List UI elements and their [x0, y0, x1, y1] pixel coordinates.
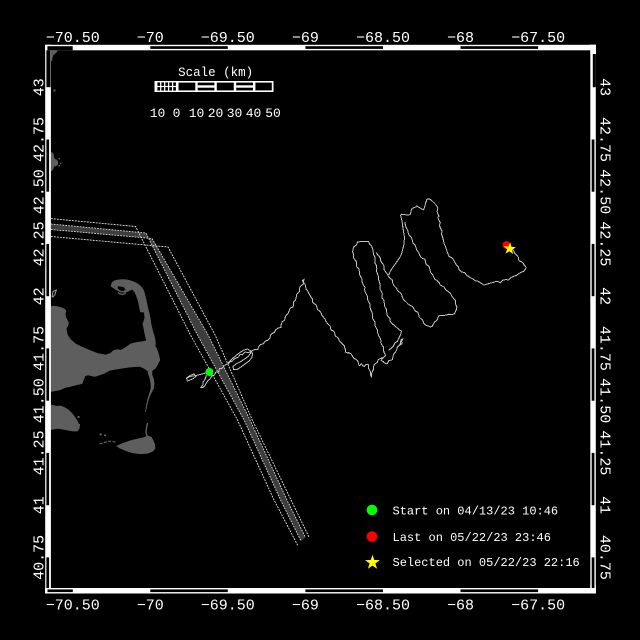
svg-text:10: 10 — [150, 106, 166, 121]
svg-text:43: 43 — [32, 78, 49, 96]
svg-text:Scale (km): Scale (km) — [178, 66, 253, 80]
svg-text:−68: −68 — [447, 30, 474, 47]
svg-text:43: 43 — [596, 78, 613, 96]
svg-text:42.25: 42.25 — [596, 221, 613, 266]
svg-text:Selected on 05/22/23 22:16: Selected on 05/22/23 22:16 — [393, 556, 580, 570]
svg-text:40.75: 40.75 — [32, 535, 49, 580]
svg-text:41.75: 41.75 — [32, 326, 49, 371]
svg-text:−70: −70 — [137, 598, 164, 615]
svg-text:41.25: 41.25 — [596, 430, 613, 475]
svg-text:42.50: 42.50 — [32, 169, 49, 214]
svg-text:−68: −68 — [447, 598, 474, 615]
svg-text:42.25: 42.25 — [32, 221, 49, 266]
svg-text:41.75: 41.75 — [596, 326, 613, 371]
svg-text:−69: −69 — [292, 598, 319, 615]
svg-text:42.50: 42.50 — [596, 169, 613, 214]
svg-text:−67.50: −67.50 — [511, 598, 565, 615]
svg-text:41.50: 41.50 — [596, 378, 613, 423]
svg-text:20: 20 — [208, 106, 224, 121]
svg-text:50: 50 — [265, 106, 281, 121]
svg-text:−69.50: −69.50 — [201, 30, 255, 47]
svg-text:41: 41 — [596, 496, 613, 514]
svg-text:42: 42 — [32, 287, 49, 305]
svg-text:−70: −70 — [137, 30, 164, 47]
svg-text:40.75: 40.75 — [596, 535, 613, 580]
svg-text:−70.50: −70.50 — [46, 598, 100, 615]
svg-text:0: 0 — [173, 106, 181, 121]
svg-text:Last on 05/22/23 23:46: Last on 05/22/23 23:46 — [393, 531, 551, 545]
svg-text:−69.50: −69.50 — [201, 598, 255, 615]
svg-text:−68.50: −68.50 — [356, 30, 410, 47]
svg-text:30: 30 — [227, 106, 243, 121]
svg-text:42.75: 42.75 — [32, 117, 49, 162]
svg-text:Start on 04/13/23 10:46: Start on 04/13/23 10:46 — [393, 504, 559, 518]
svg-text:41: 41 — [32, 496, 49, 514]
svg-text:10: 10 — [189, 106, 205, 121]
svg-text:−67.50: −67.50 — [511, 30, 565, 47]
svg-text:41.50: 41.50 — [32, 378, 49, 423]
svg-text:−70.50: −70.50 — [46, 30, 100, 47]
svg-text:42: 42 — [596, 287, 613, 305]
svg-text:42.75: 42.75 — [596, 117, 613, 162]
svg-text:−69: −69 — [292, 30, 319, 47]
svg-text:41.25: 41.25 — [32, 430, 49, 475]
svg-text:40: 40 — [246, 106, 262, 121]
svg-text:−68.50: −68.50 — [356, 598, 410, 615]
